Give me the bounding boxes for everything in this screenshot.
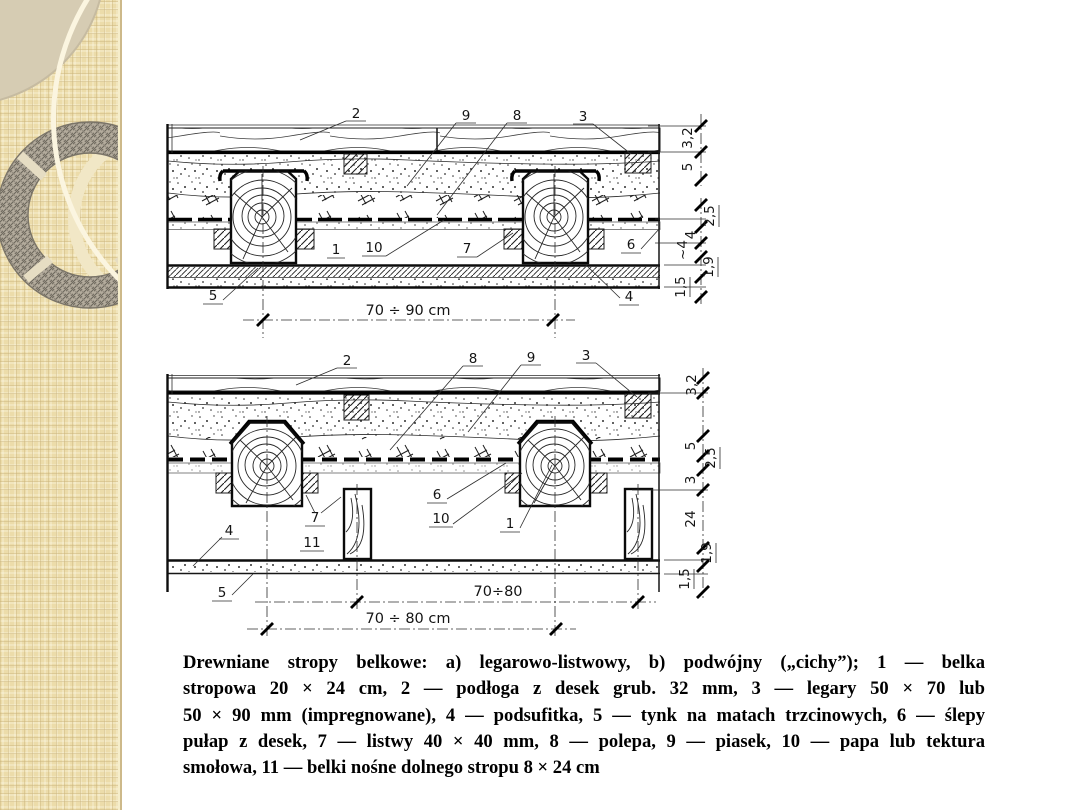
label-a-7: 7 bbox=[463, 241, 472, 257]
label-a-1: 1 bbox=[332, 242, 341, 258]
caption-line: Drewniane stropy belkowe: a) legarowo-li… bbox=[183, 650, 985, 676]
label-a-10: 10 bbox=[365, 240, 382, 256]
figure-panel-b: 70÷80 70 ÷ 80 cm 3,2 5 2,5 3 24 1,9 bbox=[168, 348, 721, 637]
chain-a-5: 1,9 bbox=[701, 256, 717, 277]
caption-line: 50 × 90 mm (impregnowane), 4 — podsufitk… bbox=[183, 703, 985, 729]
label-b-2: 2 bbox=[343, 353, 352, 369]
chain-b-1: 5 bbox=[683, 442, 699, 451]
label-a-2: 2 bbox=[352, 106, 361, 122]
chain-b-4: 24 bbox=[683, 510, 699, 527]
chain-a-1: 5 bbox=[680, 163, 696, 172]
label-b-5: 5 bbox=[218, 585, 227, 601]
label-b-3: 3 bbox=[582, 348, 591, 364]
label-b-4: 4 bbox=[225, 523, 234, 539]
dimension-upper-b: 70 ÷ 80 cm bbox=[247, 611, 576, 635]
chain-a-4: ~4 bbox=[675, 240, 691, 260]
figure-panel-a: 70 ÷ 90 cm 3,2 5 2,5 4 ~4 1,9 1,5 bbox=[168, 106, 720, 338]
chain-a-6: 1,5 bbox=[673, 276, 689, 297]
label-b-8: 8 bbox=[469, 351, 478, 367]
caption-line: smołowa, 11 — belki nośne dolnego stropu… bbox=[183, 755, 985, 781]
caption-line: pułap z desek, 7 — listwy 40 × 40 mm, 8 … bbox=[183, 729, 985, 755]
chain-a-3: 4 bbox=[683, 231, 699, 240]
label-b-1: 1 bbox=[506, 516, 515, 532]
chain-b-0: 3,2 bbox=[684, 374, 700, 395]
label-a-4: 4 bbox=[625, 289, 634, 305]
label-a-8: 8 bbox=[513, 108, 522, 124]
dim-lower-b-text: 70÷80 bbox=[473, 584, 522, 600]
chain-b-2: 2,5 bbox=[703, 447, 719, 468]
dim-upper-b-text: 70 ÷ 80 cm bbox=[366, 611, 451, 627]
label-a-6: 6 bbox=[627, 237, 636, 253]
chain-b-3: 3 bbox=[683, 476, 699, 485]
caption-line: stropowa 20 × 24 cm, 2 — podłoga z desek… bbox=[183, 676, 985, 702]
chain-a-0: 3,2 bbox=[680, 127, 696, 148]
label-a-9: 9 bbox=[462, 108, 471, 124]
chain-a-2: 2,5 bbox=[702, 205, 718, 226]
chain-b-5: 1,9 bbox=[699, 542, 715, 563]
dim-span-a-text: 70 ÷ 90 cm bbox=[366, 303, 451, 319]
label-b-11: 11 bbox=[303, 535, 320, 551]
label-b-9: 9 bbox=[527, 350, 536, 366]
label-a-5: 5 bbox=[209, 288, 218, 304]
dimension-span-a: 70 ÷ 90 cm bbox=[243, 303, 575, 326]
figure-caption: Drewniane stropy belkowe: a) legarowo-li… bbox=[183, 650, 985, 781]
label-a-3: 3 bbox=[579, 109, 588, 125]
dimension-lower-b: 70÷80 bbox=[255, 584, 656, 608]
chain-b-6: 1,5 bbox=[677, 568, 693, 589]
label-b-10: 10 bbox=[432, 511, 449, 527]
label-b-6: 6 bbox=[433, 487, 442, 503]
